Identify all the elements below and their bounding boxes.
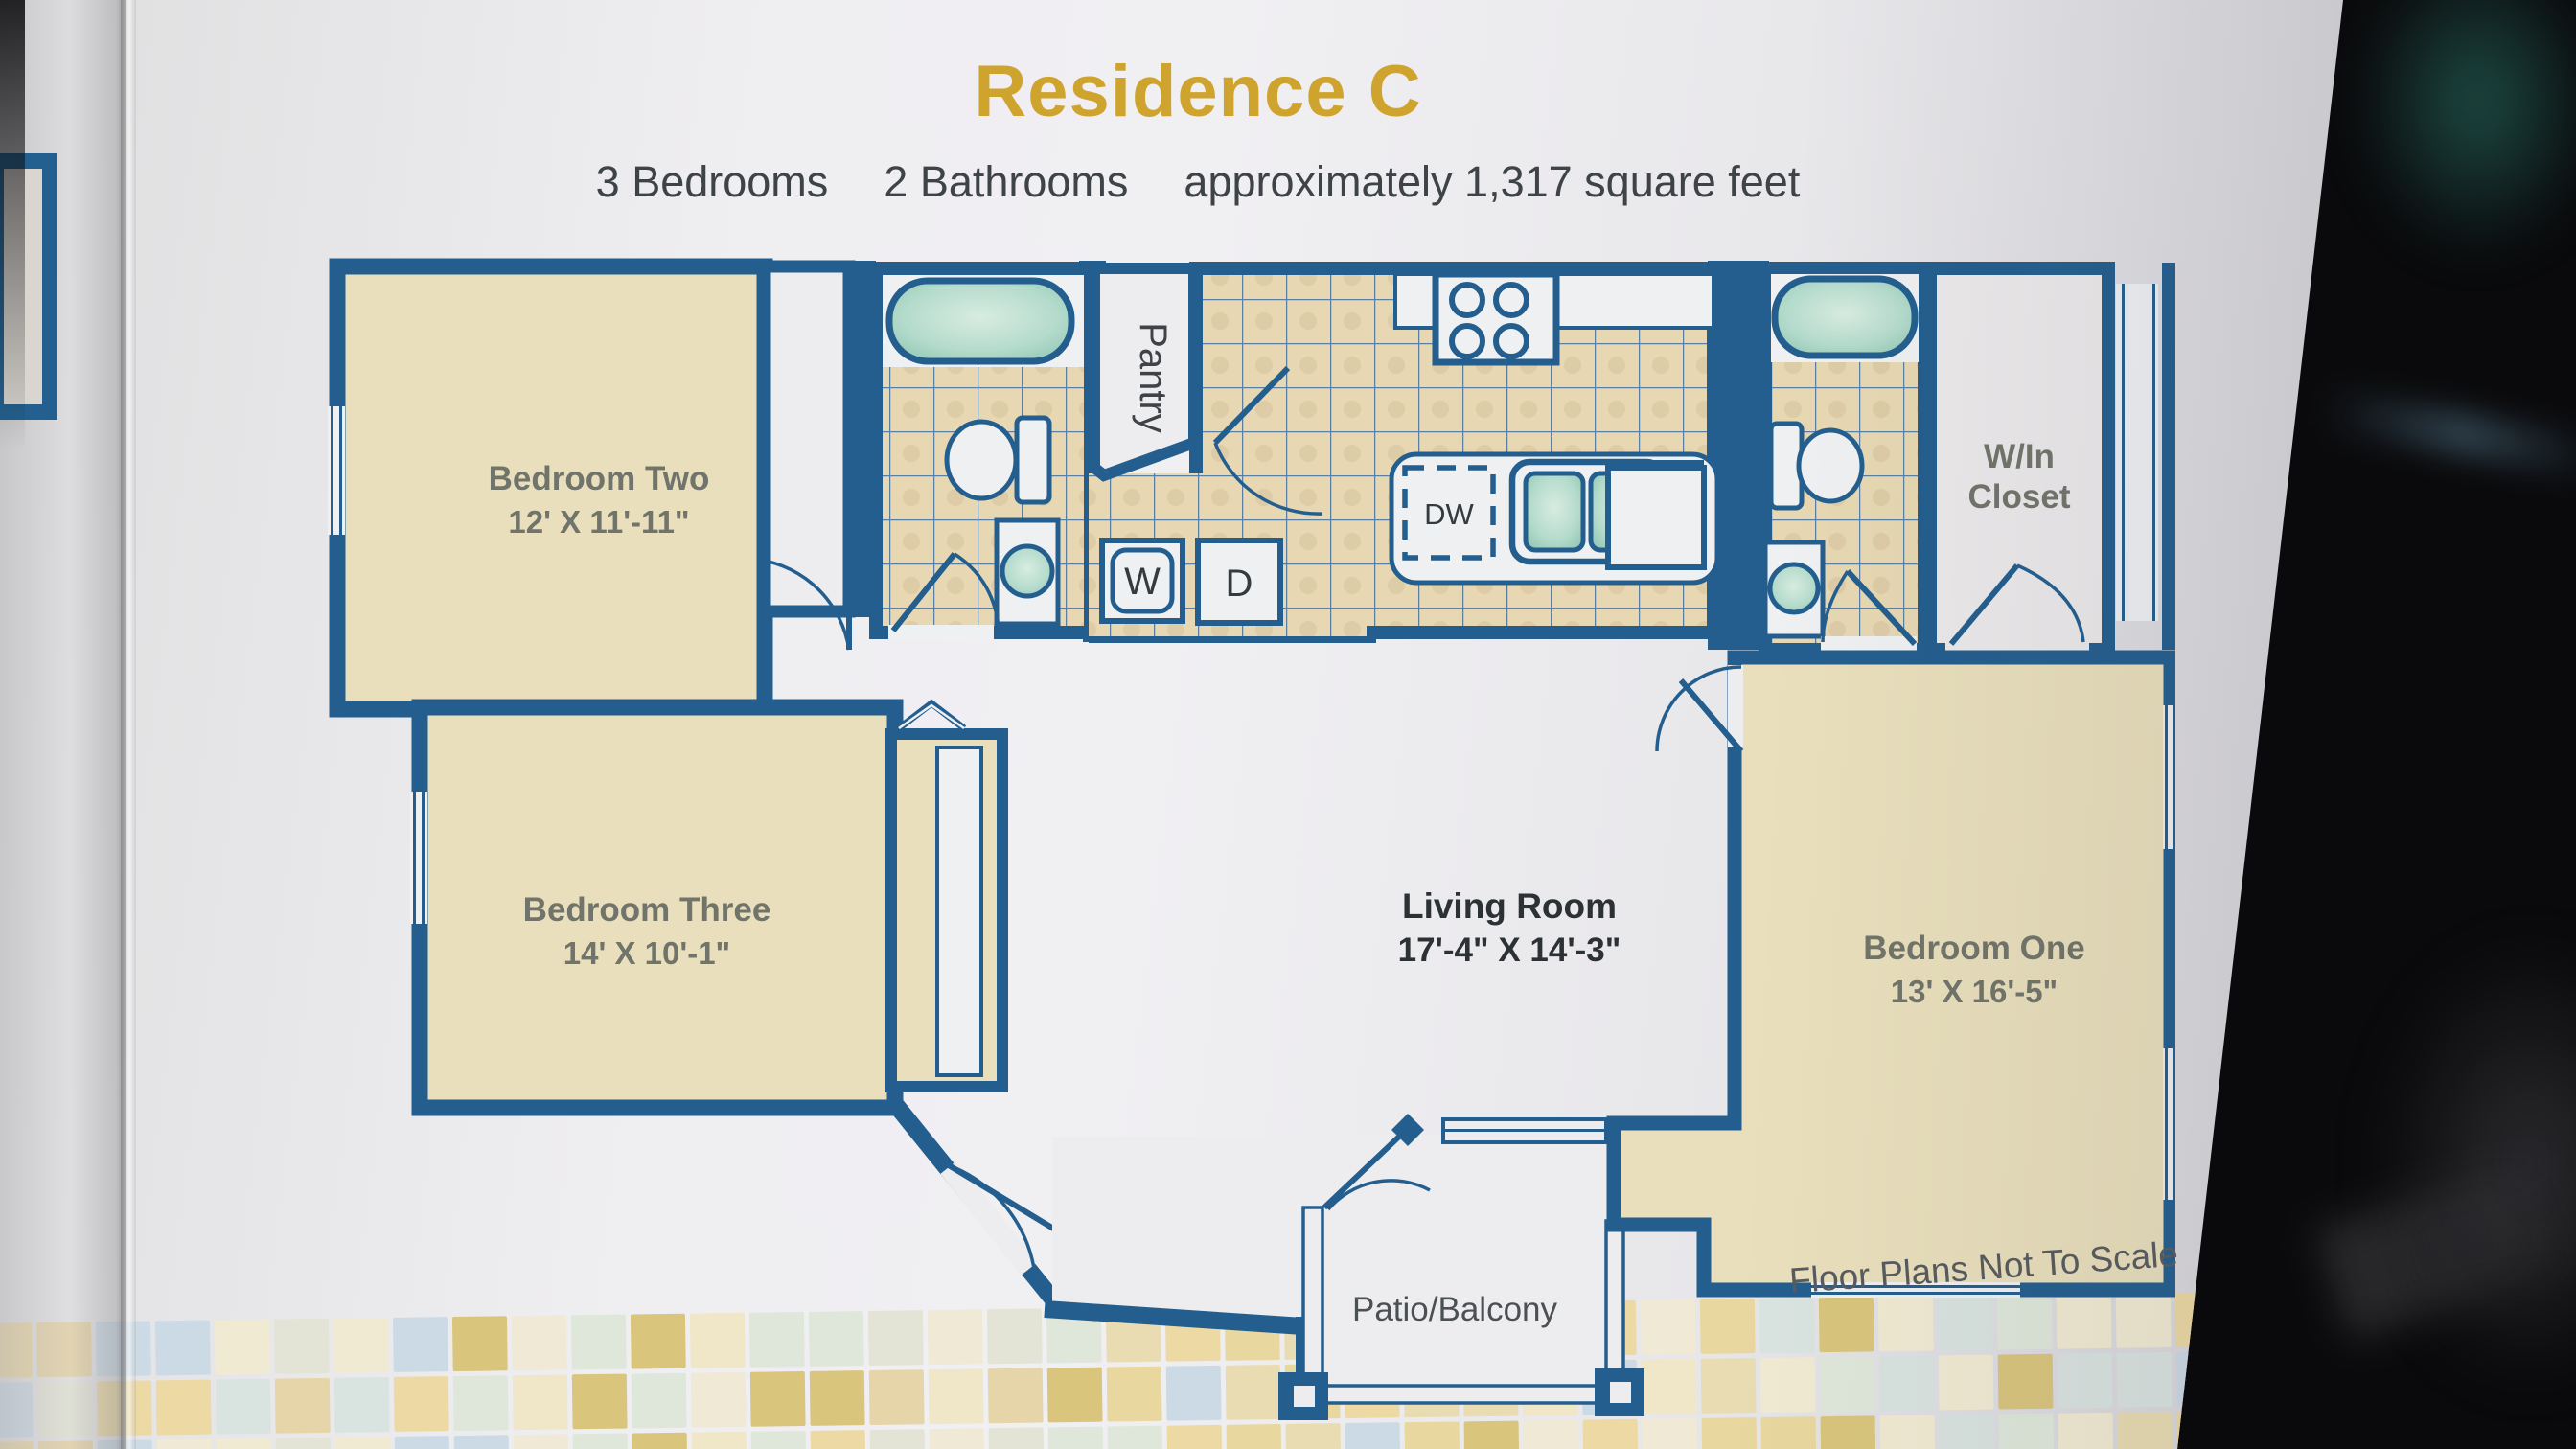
bathtub xyxy=(889,281,1071,361)
mosaic-tile xyxy=(2414,1408,2470,1449)
mosaic-tile xyxy=(2473,1407,2529,1449)
window xyxy=(410,792,427,924)
toilet xyxy=(1799,430,1862,501)
walk-in-closet-label-2: Closet xyxy=(1968,478,2071,516)
mosaic-tile xyxy=(38,1440,94,1449)
bedroom-two-label: Bedroom Two xyxy=(489,460,710,497)
pantry-label: Pantry xyxy=(1132,322,1174,433)
mosaic-tile xyxy=(632,1433,688,1449)
room-pantry: Pantry xyxy=(1094,268,1194,475)
background-blob-2 xyxy=(2317,1153,2576,1339)
mosaic-tile xyxy=(2355,1409,2410,1449)
subtitle-bedrooms: 3 Bedrooms xyxy=(596,157,829,207)
dryer-label: D xyxy=(1226,563,1253,605)
room-bathroom-two xyxy=(1765,268,1924,652)
toilet-tank xyxy=(1017,418,1049,502)
bedroom-three-label: Bedroom Three xyxy=(523,891,771,929)
mosaic-tile xyxy=(36,1322,92,1377)
mosaic-tile xyxy=(0,1441,34,1449)
page-subtitle: 3 Bedrooms 2 Bathrooms approximately 1,3… xyxy=(431,157,1965,207)
mosaic-tile xyxy=(2177,1411,2233,1449)
mosaic-tile xyxy=(2295,1349,2351,1405)
room-bathroom-one xyxy=(876,268,1091,640)
mosaic-tile xyxy=(692,1432,747,1449)
bedroom-two-dims: 12' X 11'-11" xyxy=(508,504,689,540)
living-room-dims: 17'-4" X 14'-3" xyxy=(1398,931,1621,969)
refrigerator xyxy=(1608,468,1704,567)
room-bedroom-three: Bedroom Three 14' X 10'-1" xyxy=(410,707,895,1108)
washer-label: W xyxy=(1124,561,1161,603)
patio-label: Patio/Balcony xyxy=(1352,1291,1558,1328)
mosaic-tile xyxy=(2354,1290,2409,1345)
mosaic-tile xyxy=(573,1434,629,1449)
mosaic-tile xyxy=(2414,1348,2470,1404)
subtitle-bathrooms: 2 Bathrooms xyxy=(884,157,1128,207)
mosaic-tile xyxy=(2473,1347,2529,1403)
mosaic-tile xyxy=(335,1437,391,1449)
mosaic-tile xyxy=(276,1437,332,1449)
mosaic-tile xyxy=(217,1438,272,1449)
mosaic-tile xyxy=(155,1321,211,1376)
mosaic-tile xyxy=(2175,1292,2231,1347)
entry xyxy=(895,1104,1060,1303)
walk-in-closet-label-1: W/In xyxy=(1984,438,2055,475)
mosaic-tile xyxy=(2294,1290,2350,1345)
bedroom-one-label: Bedroom One xyxy=(1863,930,2084,967)
mosaic-tile xyxy=(2235,1291,2290,1346)
mosaic-tile xyxy=(0,1322,33,1378)
mosaic-tile xyxy=(514,1434,569,1449)
mosaic-tile xyxy=(156,1380,212,1436)
room-walk-in-closet: W/In Closet xyxy=(1930,263,2175,652)
mosaic-tile xyxy=(2532,1287,2576,1343)
sink xyxy=(1002,546,1052,596)
mosaic-tile xyxy=(454,1435,510,1449)
mosaic-tile xyxy=(215,1320,270,1375)
mosaic-tile xyxy=(2355,1349,2410,1405)
background-streak xyxy=(2317,385,2576,483)
mosaic-tile xyxy=(2236,1350,2291,1406)
railing xyxy=(1303,1207,1322,1376)
bedroom-one-dims: 13' X 16'-5" xyxy=(1891,974,2058,1009)
bifold-door xyxy=(899,703,964,728)
railing xyxy=(1321,1386,1602,1403)
mosaic-tile xyxy=(216,1379,271,1435)
subtitle-area: approximately 1,317 square feet xyxy=(1184,157,1800,207)
hall-closet xyxy=(759,266,849,650)
bathtub xyxy=(1775,279,1915,356)
mosaic-tile xyxy=(157,1439,213,1449)
dishwasher-label: DW xyxy=(1424,497,1474,531)
mosaic-tile xyxy=(2472,1288,2528,1344)
mosaic-tile xyxy=(395,1436,450,1449)
window xyxy=(328,406,345,535)
brochure-photo: Residence C 3 Bedrooms 2 Bathrooms appro… xyxy=(0,0,2576,1449)
sink xyxy=(1770,564,1818,612)
mosaic-tile xyxy=(37,1381,93,1437)
room-bedroom-two: Bedroom Two 12' X 11'-11" xyxy=(328,266,765,709)
brochure-page: Residence C 3 Bedrooms 2 Bathrooms appro… xyxy=(0,0,2576,1449)
room-bedroom-one: Bedroom One 13' X 16'-5" xyxy=(1614,657,2175,1298)
toilet xyxy=(947,422,1016,498)
background-blob xyxy=(2377,939,2576,1390)
mosaic-tile xyxy=(98,1439,153,1449)
page-title: Residence C xyxy=(623,50,1773,133)
living-room-label: Living Room xyxy=(1402,886,1617,926)
room-patio: Patio/Balcony xyxy=(1045,1114,1644,1420)
mosaic-tile xyxy=(97,1380,152,1436)
railing xyxy=(1606,1221,1623,1372)
bedroom-three-closet xyxy=(891,703,1002,1087)
mosaic-tile xyxy=(96,1321,151,1376)
mosaic-tile xyxy=(2295,1409,2351,1449)
mosaic-tile xyxy=(2413,1289,2469,1345)
mosaic-tile xyxy=(0,1382,34,1437)
background-glow xyxy=(2353,0,2576,259)
room-living: Living Room 17'-4" X 14'-3" xyxy=(1398,886,1621,969)
mosaic-tile xyxy=(2176,1351,2232,1407)
mosaic-tile xyxy=(2237,1410,2292,1449)
mosaic-tile xyxy=(2533,1346,2576,1402)
bedroom-three-dims: 14' X 10'-1" xyxy=(563,935,730,971)
mosaic-tile xyxy=(2533,1406,2576,1449)
